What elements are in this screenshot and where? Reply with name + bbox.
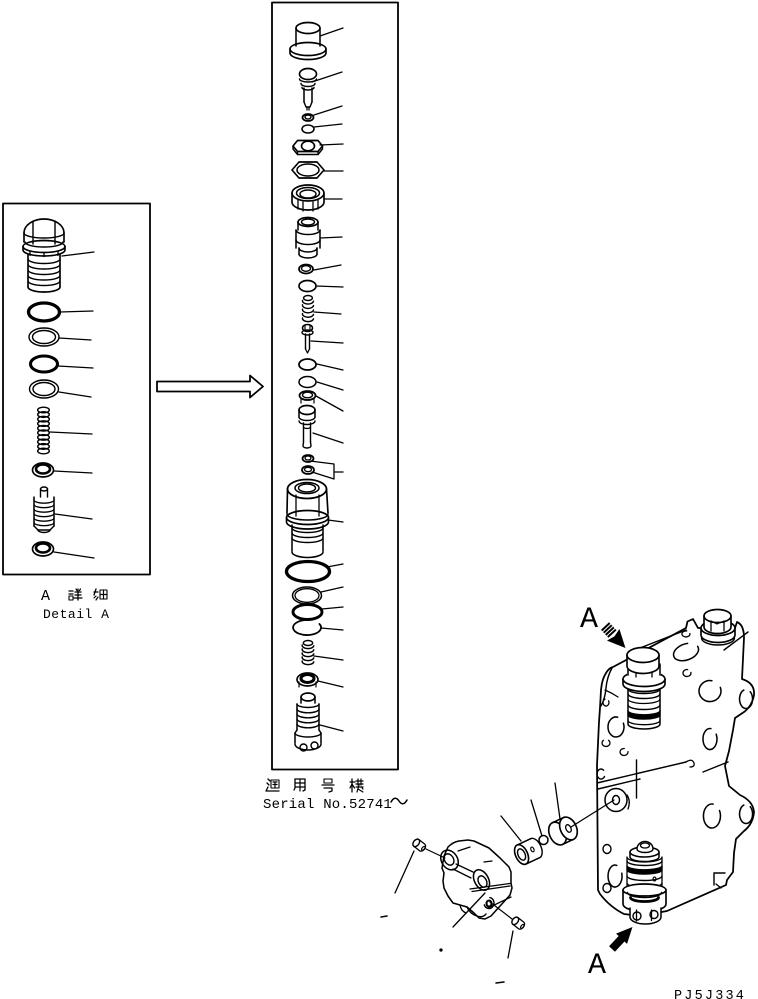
svg-text:PJ5J334: PJ5J334 (674, 989, 746, 999)
svg-text:A: A (588, 949, 606, 983)
svg-text:Serial No.52741: Serial No.52741 (263, 797, 392, 813)
svg-text:A: A (41, 588, 50, 605)
svg-text:Detail A: Detail A (43, 607, 109, 622)
svg-text:A: A (580, 603, 598, 637)
